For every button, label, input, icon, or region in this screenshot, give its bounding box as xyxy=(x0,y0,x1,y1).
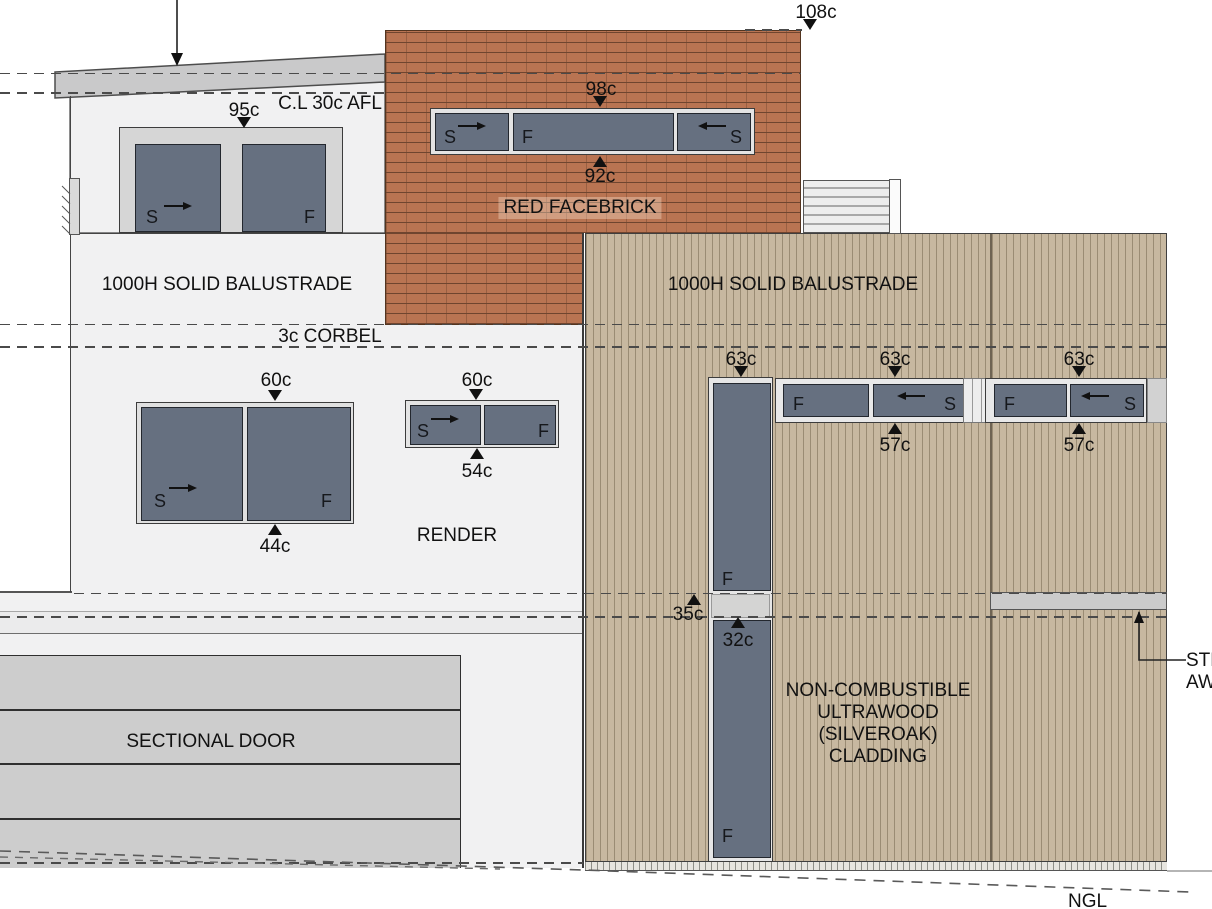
roof-level-dashed-line xyxy=(0,73,801,75)
upper-balcony-door: S F xyxy=(119,127,343,233)
dim-marker-down xyxy=(888,366,902,377)
wall-right-edge xyxy=(582,233,584,868)
stair-window-upper: F xyxy=(713,383,771,591)
slide-direction-arrow-icon xyxy=(164,205,184,207)
fixed-panel-label: F xyxy=(538,421,549,442)
louvre-screen xyxy=(803,180,890,233)
fixed-panel-label: F xyxy=(321,491,332,512)
floor-level-dashed-line xyxy=(0,616,1167,618)
dim-54c: 54c xyxy=(462,461,493,483)
window-glass-fixed: F xyxy=(783,384,869,417)
sectional-door-label: SECTIONAL DOOR xyxy=(126,731,295,753)
dim-marker-down xyxy=(593,96,607,107)
slide-direction-arrow-icon xyxy=(905,395,925,397)
window-glass-sliding: S xyxy=(677,113,751,151)
slide-direction-arrow-icon xyxy=(1089,395,1109,397)
dim-44c: 44c xyxy=(260,536,291,558)
dim-35c: 35c xyxy=(673,604,704,626)
cladding-panel-joint xyxy=(990,234,992,861)
ground-line-right xyxy=(1167,870,1212,872)
door-panel-line xyxy=(0,763,460,765)
elevation-drawing: 1000H SOLID BALUSTRADE 1000H SOLID BALUS… xyxy=(0,0,1212,909)
wall-left-edge xyxy=(70,96,72,592)
fixed-panel-label: F xyxy=(1004,394,1015,415)
slide-direction-arrow-icon xyxy=(431,418,451,420)
lower-wall-top-edge xyxy=(0,591,72,593)
dim-marker-down xyxy=(803,19,817,30)
sliding-panel-label: S xyxy=(944,394,956,415)
window-glass-sliding: S xyxy=(141,407,243,521)
steel-awning-label: STEEL AWNING xyxy=(1186,650,1212,694)
sectional-door xyxy=(0,655,461,868)
window-glass-sliding: S xyxy=(873,384,964,417)
bedroom-window-large: S F xyxy=(136,402,354,524)
fixed-panel-label: F xyxy=(722,826,733,847)
right-window-band-2: F S xyxy=(985,378,1147,423)
steel-awning xyxy=(990,592,1167,610)
slide-direction-arrow-icon xyxy=(169,487,189,489)
window-glass-fixed: F xyxy=(994,384,1067,417)
window-glass-fixed: F xyxy=(484,405,556,445)
floor-slab-band xyxy=(0,611,583,634)
bedroom-window-small: S F xyxy=(405,400,559,448)
dim-marker-down xyxy=(237,117,251,128)
sliding-panel-label: S xyxy=(146,207,158,228)
sliding-panel-label: S xyxy=(730,127,742,148)
dim-57c: 57c xyxy=(880,435,911,457)
stair-window-lower: F xyxy=(713,620,771,858)
door-glass-sliding: S xyxy=(135,144,221,232)
window-glass-sliding: S xyxy=(410,405,481,445)
sliding-panel-label: S xyxy=(154,491,166,512)
dim-marker-up xyxy=(268,524,282,535)
dim-marker-down xyxy=(268,390,282,401)
sliding-panel-label: S xyxy=(417,421,429,442)
brick-window-band: S F S xyxy=(430,108,755,155)
fixed-panel-label: F xyxy=(722,569,733,590)
balustrade-post xyxy=(889,179,901,234)
parapet-level-dashed-line xyxy=(745,29,802,31)
corbel-bottom-dashed-line xyxy=(0,346,1167,348)
corbel-top-dashed-line xyxy=(0,324,1167,326)
right-window-band-1: F S xyxy=(775,378,967,423)
corbel-label: 3c CORBEL xyxy=(278,326,381,348)
dim-57c: 57c xyxy=(1064,435,1095,457)
dim-92c: 92c xyxy=(585,166,616,188)
window-glass-fixed: F xyxy=(513,113,674,151)
red-facebrick-label: RED FACEBRICK xyxy=(498,197,661,219)
window-glass-sliding: S xyxy=(435,113,509,151)
balustrade-label-left: 1000H SOLID BALUSTRADE xyxy=(102,274,352,296)
ceiling-level-label: C.L 30c AFL xyxy=(278,93,382,115)
fixed-panel-label: F xyxy=(304,207,315,228)
wall-return-post xyxy=(69,178,80,235)
fixed-panel-label: F xyxy=(522,127,533,148)
slab-spandrel xyxy=(711,594,770,618)
dim-marker-up xyxy=(888,423,902,434)
dim-60c: 60c xyxy=(261,370,292,392)
cladding-material-label: NON-COMBUSTIBLE ULTRAWOOD (SILVEROAK) CL… xyxy=(786,680,971,768)
window-glass-sliding: S xyxy=(1070,384,1144,417)
dim-marker-up xyxy=(1072,423,1086,434)
mullion-line xyxy=(981,379,982,422)
window-glass-fixed: F xyxy=(247,407,351,521)
dim-marker-down xyxy=(1072,366,1086,377)
slide-direction-arrow-icon xyxy=(706,125,726,127)
dim-marker-up xyxy=(731,617,745,628)
door-panel-line xyxy=(0,709,460,711)
floor-level-dashed-line xyxy=(74,593,1167,595)
sliding-panel-label: S xyxy=(1124,394,1136,415)
dim-marker-up xyxy=(470,448,484,459)
ground-level-dashed-line xyxy=(0,862,583,864)
dim-marker-down xyxy=(469,389,483,400)
door-glass-fixed: F xyxy=(242,144,326,232)
render-label: RENDER xyxy=(417,525,497,547)
slide-direction-arrow-icon xyxy=(458,125,478,127)
dim-marker-down xyxy=(734,366,748,377)
fixed-panel-label: F xyxy=(793,394,804,415)
door-panel-line xyxy=(0,818,460,820)
mullion-line xyxy=(972,379,973,422)
ngl-label: NGL xyxy=(1068,891,1107,909)
brick-wall-lower xyxy=(385,233,583,325)
dim-32c: 32c xyxy=(723,630,754,652)
sliding-panel-label: S xyxy=(444,127,456,148)
balustrade-label-right: 1000H SOLID BALUSTRADE xyxy=(668,274,918,296)
window-side-panel xyxy=(1147,378,1167,423)
cladding-base-strip xyxy=(585,862,1167,871)
